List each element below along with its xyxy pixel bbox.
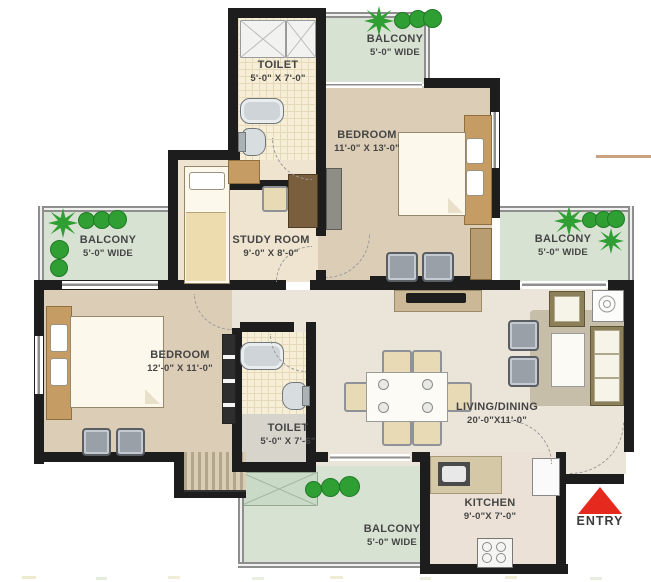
room-dims: 5'-0" WIDE (332, 537, 452, 549)
wall-segment (168, 150, 240, 160)
shaft-box (240, 20, 286, 58)
room-name: BALCONY (332, 522, 452, 537)
dining-table (366, 372, 448, 422)
room-name: KITCHEN (430, 496, 550, 511)
stove-burners (479, 540, 509, 564)
scan-artifact (22, 576, 36, 579)
plant-icon (305, 481, 322, 498)
pillow (189, 172, 225, 190)
room-label-balcony-left: BALCONY 5'-0" WIDE (48, 233, 168, 260)
railing (238, 562, 422, 568)
sofa-cushion (594, 354, 620, 378)
plant-icon (423, 9, 442, 28)
sofa-cushion (594, 330, 620, 354)
place-setting (378, 379, 389, 390)
wall-segment (420, 452, 430, 574)
room-label-bedroom-top: BEDROOM 11'-0" X 13'-0" (307, 128, 427, 155)
window (35, 336, 43, 394)
room-name: BALCONY (335, 32, 455, 47)
room-dims: 5'-0" WIDE (503, 247, 623, 259)
room-name: STUDY ROOM (208, 233, 334, 248)
wall-segment (424, 78, 500, 88)
cabinet (228, 160, 260, 184)
pillow (466, 170, 484, 196)
room-label-living-dining: LIVING/DINING 20'-0"X11'-0" (437, 400, 557, 427)
room-label-bedroom-left: BEDROOM 12'-0" X 11'-0" (120, 348, 240, 375)
window (522, 281, 606, 289)
room-name: LIVING/DINING (437, 400, 557, 415)
dimension-line (596, 155, 651, 158)
floor-plan: TOILET 5'-0" X 7'-0" BALCONY 5'-0" WIDE … (0, 0, 651, 582)
wall-segment (240, 322, 294, 332)
window (491, 112, 499, 168)
wardrobe (326, 168, 342, 230)
scan-artifact (96, 577, 107, 580)
railing (38, 206, 44, 286)
ottoman (422, 252, 454, 282)
study-desk (288, 174, 318, 228)
scan-artifact (330, 576, 343, 579)
bed-fold (145, 389, 160, 404)
scan-artifact (420, 577, 431, 580)
toilet-tank (302, 386, 310, 406)
room-dims: 9'-0" X 8'-0" (208, 248, 334, 260)
scan-artifact (590, 577, 602, 580)
room-label-toilet-top: TOILET 5'-0" X 7'-0" (233, 58, 323, 85)
wall-segment (306, 452, 328, 462)
scan-artifact (505, 576, 517, 579)
plant-icon (108, 210, 127, 229)
wall-segment (168, 150, 178, 290)
tv (406, 293, 466, 303)
ottoman (386, 252, 418, 282)
armchair-cushion (554, 296, 580, 322)
wardrobe (470, 228, 492, 280)
room-label-toilet-bottom: TOILET 5'-0" X 7'-6" (238, 421, 338, 448)
room-dims: 12'-0" X 11'-0" (120, 363, 240, 375)
room-name: BALCONY (48, 233, 168, 248)
table-lamp (597, 294, 617, 314)
room-dims: 11'-0" X 13'-0" (307, 143, 427, 155)
plant-icon (321, 478, 340, 497)
entry-arrow-icon (578, 487, 622, 514)
desk-chair (262, 186, 288, 212)
plant-icon (50, 259, 68, 277)
room-dims: 20'-0"X11'-0" (437, 415, 557, 427)
place-setting (378, 402, 389, 413)
wall-segment (228, 8, 326, 18)
scan-artifact (168, 576, 180, 579)
room-dims: 9'-0"X 7'-0" (430, 511, 550, 523)
wall-segment (232, 462, 316, 472)
wall-segment (566, 474, 624, 484)
entry-label: ENTRY (568, 514, 632, 528)
pillow (50, 324, 68, 352)
window (330, 454, 410, 461)
wall-segment (624, 280, 634, 452)
plant-icon (607, 210, 625, 228)
bathtub (240, 98, 284, 124)
window (62, 281, 158, 289)
room-dims: 5'-0" WIDE (335, 47, 455, 59)
bed-fold (448, 198, 463, 213)
pillow (50, 358, 68, 386)
room-label-kitchen: KITCHEN 9'-0"X 7'-0" (430, 496, 550, 523)
room-dims: 5'-0" WIDE (48, 248, 168, 260)
room-name: TOILET (238, 421, 338, 436)
toilet-tank (238, 132, 246, 152)
place-setting (422, 402, 433, 413)
window (326, 82, 422, 88)
shaft-box (286, 20, 316, 58)
ottoman (82, 428, 111, 456)
ottoman (508, 320, 539, 351)
room-name: TOILET (233, 58, 323, 73)
railing (628, 206, 634, 286)
room-dims: 5'-0" X 7'-0" (233, 73, 323, 85)
dining-chair (382, 420, 412, 446)
room-dims: 5'-0" X 7'-6" (238, 436, 338, 448)
plant-icon (339, 476, 360, 497)
ottoman (508, 356, 539, 387)
room-name: BALCONY (503, 232, 623, 247)
room-name: BEDROOM (120, 348, 240, 363)
ottoman (116, 428, 145, 456)
place-setting (422, 379, 433, 390)
pillow (466, 138, 484, 164)
sofa-cushion (594, 378, 620, 402)
scan-artifact (252, 577, 264, 580)
room-label-study: STUDY ROOM 9'-0" X 8'-0" (208, 233, 334, 260)
room-label-balcony-bottom: BALCONY 5'-0" WIDE (332, 522, 452, 549)
room-label-balcony-right: BALCONY 5'-0" WIDE (503, 232, 623, 259)
room-name: BEDROOM (307, 128, 427, 143)
coffee-table (551, 333, 585, 387)
room-label-balcony-top: BALCONY 5'-0" WIDE (335, 32, 455, 59)
kitchen-sink-basin (442, 466, 466, 482)
